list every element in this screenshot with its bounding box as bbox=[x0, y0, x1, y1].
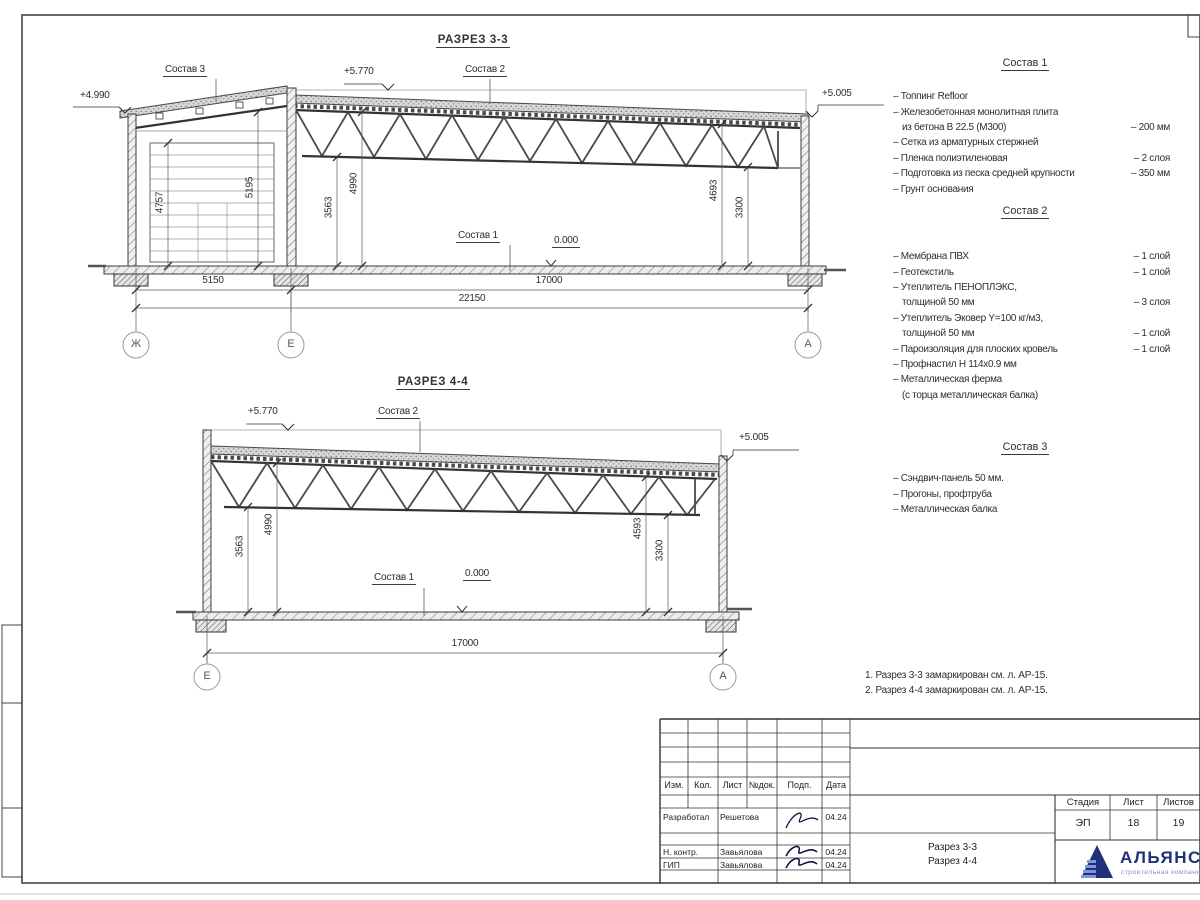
dim-4593: 4593 bbox=[633, 499, 644, 559]
axis-e-33: Е bbox=[278, 338, 304, 350]
dim-4990-33: 4990 bbox=[349, 154, 360, 214]
tb-date-3: 04.24 bbox=[822, 860, 850, 870]
axis-a-33: А bbox=[795, 338, 821, 350]
tb-doc-line-1: Разрез 3-3 bbox=[850, 842, 1055, 853]
tb-col-kol: Кол. bbox=[689, 780, 717, 790]
note-1: 1. Разрез 3-3 замаркирован см. л. АР-15. bbox=[865, 670, 1048, 681]
company-name: АЛЬЯНС bbox=[1120, 848, 1200, 868]
tb-doc-line-2: Разрез 4-4 bbox=[850, 856, 1055, 867]
tb-role-razrabotal: Разработал bbox=[663, 812, 709, 822]
tb-sheets-col: Листов bbox=[1157, 797, 1200, 808]
tb-col-izm: Изм. bbox=[661, 780, 687, 790]
tb-col-ndok: №док. bbox=[748, 780, 776, 790]
tb-role-nkontr: Н. контр. bbox=[663, 847, 698, 857]
tb-sheet-col: Лист bbox=[1110, 797, 1157, 808]
dim-4757: 4757 bbox=[155, 173, 166, 233]
drawing-sheet: РАЗРЕЗ 3-3 +4.990 +5.770 +5.005 Состав 3… bbox=[0, 0, 1200, 900]
dim-5150: 5150 bbox=[183, 275, 243, 286]
tb-date-2: 04.24 bbox=[822, 847, 850, 857]
composition-2-list: – Мембрана ПВХ– 1 слой – Геотекстиль– 1 … bbox=[893, 249, 1170, 403]
tb-stage-val: ЭП bbox=[1056, 817, 1110, 829]
tb-date-1: 04.24 bbox=[822, 812, 850, 822]
section-33-linework bbox=[73, 79, 884, 358]
composition-3-title: Состав 3 bbox=[955, 441, 1095, 453]
company-subtitle: строительная компания bbox=[1121, 869, 1200, 876]
tb-col-list: Лист bbox=[719, 780, 746, 790]
elevation-left-33: +4.990 bbox=[80, 90, 110, 102]
tb-col-data: Дата bbox=[823, 780, 849, 790]
dim-ticks-44 bbox=[203, 459, 727, 657]
dim-3563-44: 3563 bbox=[235, 517, 246, 577]
label-zero-44: 0.000 bbox=[463, 568, 491, 580]
section-44-title: РАЗРЕЗ 4-4 bbox=[368, 376, 498, 388]
composition-2-title: Состав 2 bbox=[955, 205, 1095, 217]
elevation-mid-33: +5.770 bbox=[344, 66, 374, 78]
dim-3300-44: 3300 bbox=[655, 521, 666, 581]
dim-5195: 5195 bbox=[245, 158, 256, 218]
section-33-title: РАЗРЕЗ 3-3 bbox=[408, 34, 538, 46]
composition-1-list: – Топпинг Refloor – Железобетонная монол… bbox=[893, 89, 1170, 197]
axis-a-44: А bbox=[710, 670, 736, 682]
tb-col-podp: Подп. bbox=[778, 780, 821, 790]
label-sostav2-44: Состав 2 bbox=[376, 406, 420, 418]
tb-name-reshetova: Решетова bbox=[720, 812, 759, 822]
dim-22150: 22150 bbox=[442, 293, 502, 304]
composition-1-title: Состав 1 bbox=[955, 57, 1095, 69]
tb-name-zavyalova-1: Завьялова bbox=[720, 847, 762, 857]
tb-role-gip: ГИП bbox=[663, 860, 680, 870]
axis-zh: Ж bbox=[123, 338, 149, 350]
label-sostav3-33: Состав 3 bbox=[163, 64, 207, 76]
dim-17000-33: 17000 bbox=[519, 275, 579, 286]
dim-3563-33: 3563 bbox=[324, 178, 335, 238]
tb-stage-col: Стадия bbox=[1056, 797, 1110, 808]
elevation-right-33: +5.005 bbox=[822, 88, 852, 100]
tb-sheet-val: 18 bbox=[1110, 817, 1157, 829]
signature-strokes bbox=[786, 813, 818, 868]
tb-sheets-val: 19 bbox=[1157, 817, 1200, 829]
elevation-left-44: +5.770 bbox=[248, 406, 278, 418]
dim-3300-33: 3300 bbox=[735, 178, 746, 238]
label-sostav2-33: Состав 2 bbox=[463, 64, 507, 76]
tb-name-zavyalova-2: Завьялова bbox=[720, 860, 762, 870]
dim-17000-44: 17000 bbox=[435, 638, 495, 649]
section-44-linework bbox=[176, 421, 799, 690]
dim-4990-44: 4990 bbox=[264, 495, 275, 555]
axis-e-44: Е bbox=[194, 670, 220, 682]
elevation-right-44: +5.005 bbox=[739, 432, 769, 444]
label-sostav1-33: Состав 1 bbox=[456, 230, 500, 242]
company-logo-icon bbox=[1081, 845, 1113, 878]
dim-4693: 4693 bbox=[709, 161, 720, 221]
note-2: 2. Разрез 4-4 замаркирован см. л. АР-15. bbox=[865, 685, 1048, 696]
composition-3-list: – Сэндвич-панель 50 мм. – Прогоны, профт… bbox=[893, 471, 1170, 517]
label-zero-33: 0.000 bbox=[552, 235, 580, 247]
label-sostav1-44: Состав 1 bbox=[372, 572, 416, 584]
